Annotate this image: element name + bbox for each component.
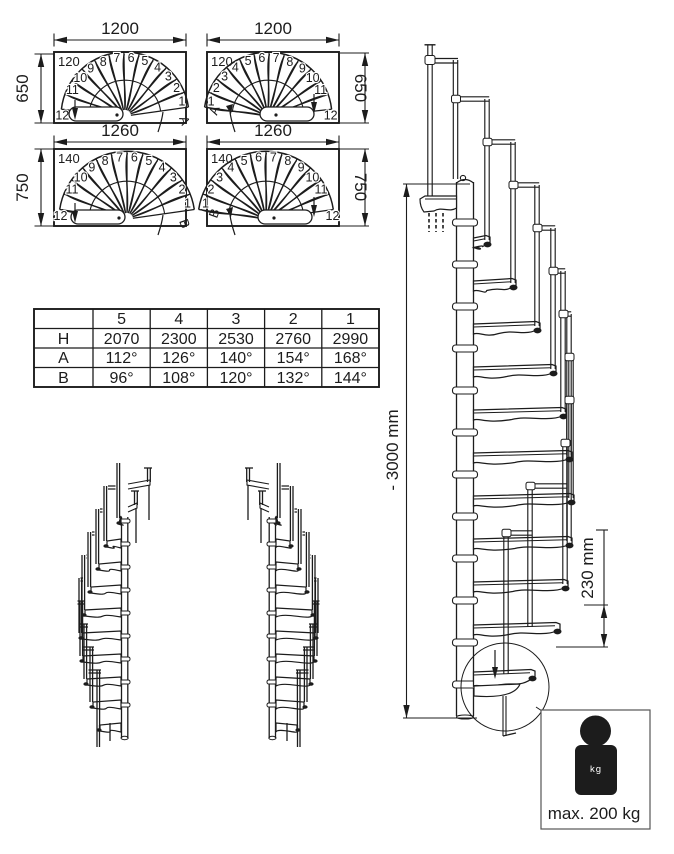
svg-text:96°: 96° xyxy=(109,370,133,387)
svg-text:4: 4 xyxy=(154,60,161,74)
svg-text:kg: kg xyxy=(590,764,602,775)
svg-text:140: 140 xyxy=(211,151,233,166)
svg-text:5: 5 xyxy=(117,311,126,328)
svg-text:154°: 154° xyxy=(277,350,310,367)
svg-text:140: 140 xyxy=(58,151,80,166)
svg-text:6: 6 xyxy=(258,51,265,65)
svg-text:2300: 2300 xyxy=(161,331,197,348)
svg-text:750: 750 xyxy=(351,173,370,201)
svg-text:4: 4 xyxy=(159,161,166,175)
svg-text:12: 12 xyxy=(54,209,68,223)
svg-text:120: 120 xyxy=(211,54,233,69)
svg-text:2760: 2760 xyxy=(275,331,311,348)
svg-text:7: 7 xyxy=(113,51,120,65)
svg-text:A: A xyxy=(58,350,69,367)
svg-text:8: 8 xyxy=(284,154,291,168)
svg-text:8: 8 xyxy=(102,154,109,168)
svg-text:120: 120 xyxy=(58,54,80,69)
svg-text:126°: 126° xyxy=(162,350,195,367)
svg-text:8: 8 xyxy=(100,55,107,69)
svg-text:2530: 2530 xyxy=(218,331,254,348)
svg-text:4: 4 xyxy=(232,60,239,74)
svg-text:11: 11 xyxy=(66,183,79,197)
svg-text:B: B xyxy=(58,370,69,387)
svg-text:2: 2 xyxy=(173,81,180,95)
svg-text:168°: 168° xyxy=(334,350,367,367)
svg-text:4: 4 xyxy=(174,311,183,328)
svg-text:6: 6 xyxy=(255,150,262,164)
svg-text:650: 650 xyxy=(351,74,370,102)
svg-text:12: 12 xyxy=(55,108,69,122)
svg-text:H: H xyxy=(58,331,70,348)
svg-text:7: 7 xyxy=(116,150,123,164)
svg-text:8: 8 xyxy=(286,55,293,69)
svg-text:144°: 144° xyxy=(334,370,367,387)
svg-text:650: 650 xyxy=(13,74,32,102)
svg-text:1260: 1260 xyxy=(101,121,139,140)
svg-text:5: 5 xyxy=(241,154,248,168)
svg-text:9: 9 xyxy=(87,62,94,76)
svg-text:108°: 108° xyxy=(162,370,195,387)
svg-text:11: 11 xyxy=(315,183,328,197)
svg-text:9: 9 xyxy=(298,161,305,175)
svg-text:112°: 112° xyxy=(106,350,138,367)
svg-text:- 3000 mm: - 3000 mm xyxy=(383,409,402,490)
svg-text:5: 5 xyxy=(145,154,152,168)
svg-text:120°: 120° xyxy=(219,370,252,387)
svg-text:140°: 140° xyxy=(219,350,252,367)
svg-text:3: 3 xyxy=(165,70,172,84)
svg-text:2: 2 xyxy=(179,183,186,197)
svg-text:3: 3 xyxy=(170,171,177,185)
svg-text:3: 3 xyxy=(232,311,241,328)
svg-text:1: 1 xyxy=(178,94,185,108)
svg-text:2: 2 xyxy=(208,183,215,197)
svg-text:max. 200 kg: max. 200 kg xyxy=(548,804,641,823)
svg-text:5: 5 xyxy=(141,54,148,68)
svg-text:5: 5 xyxy=(245,54,252,68)
svg-text:1: 1 xyxy=(346,311,355,328)
svg-text:3: 3 xyxy=(221,70,228,84)
svg-text:7: 7 xyxy=(273,51,280,65)
svg-text:750: 750 xyxy=(13,173,32,201)
svg-text:12: 12 xyxy=(324,108,338,122)
svg-text:11: 11 xyxy=(314,83,327,97)
svg-text:1200: 1200 xyxy=(101,19,139,38)
svg-text:6: 6 xyxy=(131,150,138,164)
svg-text:6: 6 xyxy=(128,51,135,65)
svg-text:11: 11 xyxy=(66,83,79,97)
svg-text:2990: 2990 xyxy=(333,331,369,348)
svg-text:1: 1 xyxy=(184,197,191,211)
svg-text:1260: 1260 xyxy=(254,121,292,140)
svg-text:132°: 132° xyxy=(277,370,310,387)
svg-text:7: 7 xyxy=(270,150,277,164)
svg-text:230 mm: 230 mm xyxy=(578,537,597,598)
svg-text:3: 3 xyxy=(216,171,223,185)
svg-text:2070: 2070 xyxy=(104,331,140,348)
svg-text:9: 9 xyxy=(88,161,95,175)
svg-text:12: 12 xyxy=(326,209,340,223)
svg-text:2: 2 xyxy=(289,311,298,328)
svg-text:2: 2 xyxy=(213,81,220,95)
svg-text:1200: 1200 xyxy=(254,19,292,38)
